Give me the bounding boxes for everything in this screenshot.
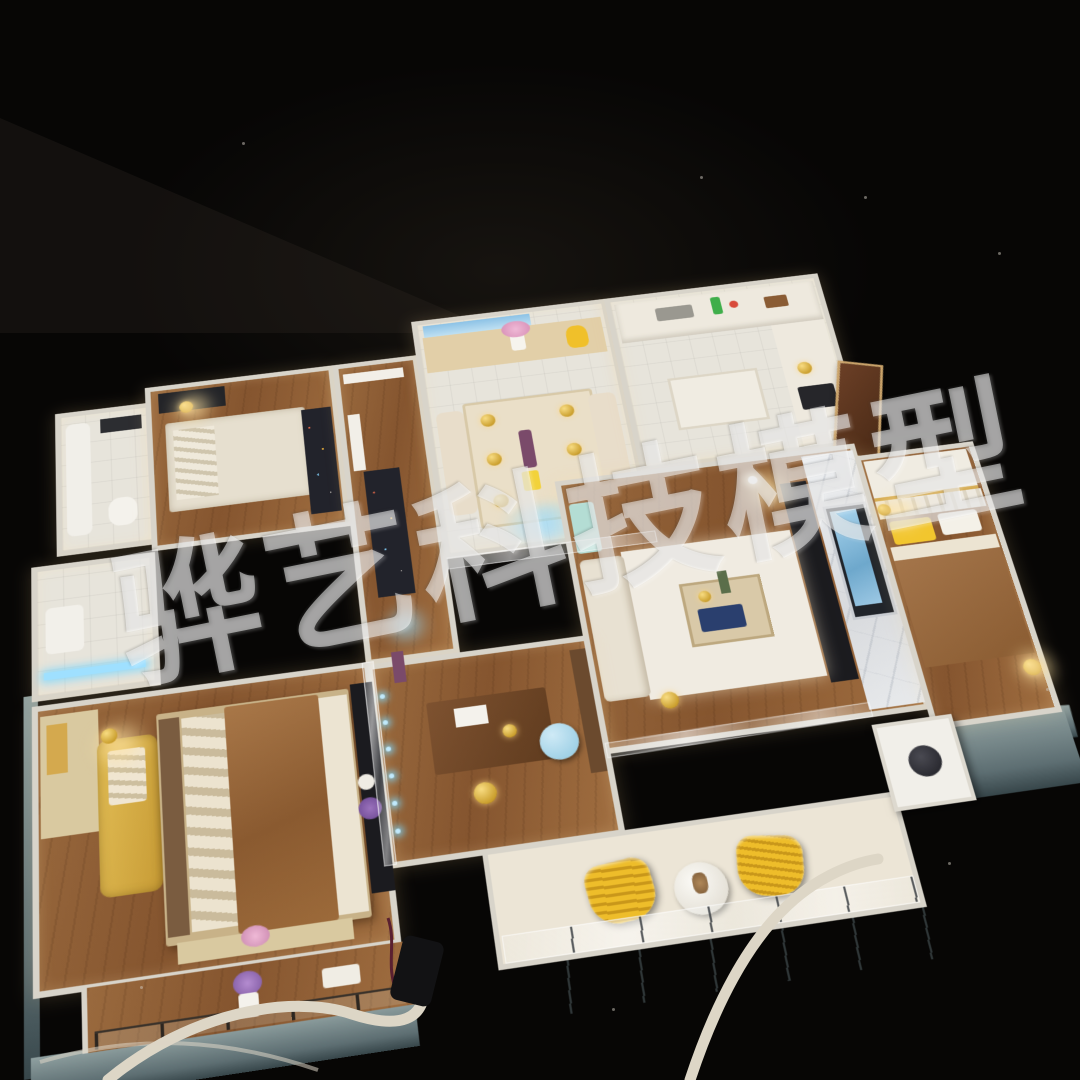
study [366,635,626,869]
master-bedroom [32,662,402,1000]
dust-speck [948,862,951,865]
cutting-board [763,294,789,308]
white-rug [621,530,828,700]
bathroom-2 [31,552,161,703]
door-panel [347,414,366,472]
centerpiece-flowers [518,429,538,468]
washing-machine-door [905,743,946,778]
photo-stage: 骅艺科技模型 [0,0,1080,1080]
dust-speck [998,252,1001,255]
washbasin [45,604,84,655]
table-vase [691,872,710,895]
gold-pan [796,361,814,375]
green-bottle [710,297,724,315]
cool-glow [376,601,437,649]
coffee-table [679,574,775,648]
gold-bowl [697,590,712,603]
small-table [322,963,361,988]
led-dot [389,773,395,779]
blue-led-strip [44,660,146,681]
deer-figurine [564,324,590,348]
bathroom-mirror [100,414,142,433]
papers [454,704,489,727]
dust-speck [700,176,703,179]
bathtub [65,422,92,537]
sink [655,304,695,321]
place-setting [493,493,510,508]
desk [426,687,557,775]
led-dot [383,720,389,725]
dust-speck [864,196,867,199]
toilet [108,495,138,526]
yellow-chair [735,835,806,896]
dust-speck [242,142,245,145]
led-dot [380,694,386,699]
kitchen [604,273,868,472]
bedroom-northwest [145,365,352,551]
dust-speck [1046,688,1049,691]
yellow-decor [521,470,541,491]
brown-blanket [894,547,1034,668]
kitchen-island [667,368,770,431]
gold-ball-decor [472,781,498,806]
table-plant [716,570,731,594]
master-bed [156,689,372,947]
galaxy-rug [301,407,342,515]
led-dot [395,828,401,834]
white-pillow [937,509,983,536]
place-setting [480,413,497,427]
dust-speck [140,986,143,989]
dust-speck [612,1008,615,1011]
blue-tray [697,604,747,633]
stove [797,383,839,410]
runner-rug [363,467,415,597]
led-dot [386,746,392,751]
desk-lamp [502,723,518,738]
wardrobe-west [40,709,101,839]
led-dot [392,800,398,806]
place-setting [558,404,575,418]
gold-door [46,723,67,775]
door-panel [343,367,404,384]
apartment-scale-model [19,260,1080,1080]
place-setting [566,442,583,456]
bathroom-1 [55,402,160,557]
red-jar [728,300,739,308]
place-setting [486,452,503,466]
pillows [173,426,219,501]
